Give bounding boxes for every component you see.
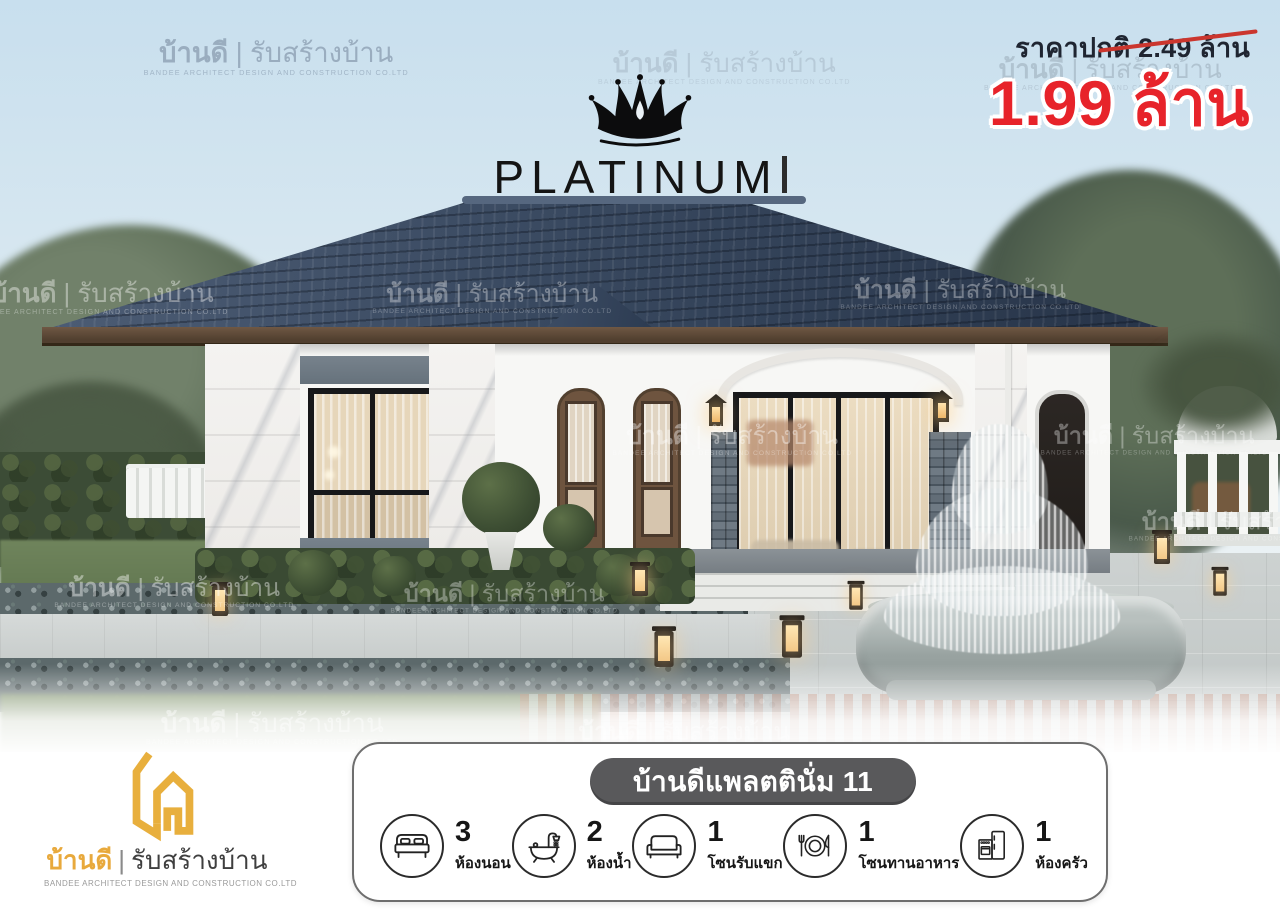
feature-kitchen: 1 ห้องครัว <box>960 814 1088 878</box>
poster: บ้านดี|รับสร้างบ้านBANDEE ARCHITECT DESI… <box>0 0 1280 923</box>
interior-artwork <box>747 420 813 466</box>
marble-pilaster <box>205 344 300 573</box>
feature-count: 1 <box>707 818 782 847</box>
promo-price: 1.99 ล้าน <box>989 73 1250 136</box>
brand-watermark: บ้านดี|รับสร้างบ้านBANDEE ARCHITECT DESI… <box>144 39 409 77</box>
bedroom-window <box>308 388 437 550</box>
garden-lamp <box>212 586 228 616</box>
feature-count: 3 <box>455 818 511 847</box>
series-badge-label: PLATINUM <box>493 150 778 204</box>
marble-pilaster <box>429 344 495 573</box>
bathtub-icon <box>512 814 576 878</box>
wall-lantern <box>931 390 953 432</box>
feature-label: ห้องนอน <box>455 851 511 875</box>
feature-label: ห้องน้ำ <box>587 851 632 875</box>
brand-logo-block: บ้านดี|รับสร้างบ้าน BANDEE ARCHITECT DES… <box>44 748 270 888</box>
brand-wordmark: บ้านดี|รับสร้างบ้าน <box>44 847 270 873</box>
dining-icon <box>783 814 847 878</box>
model-title-pill: บ้านดีแพลตตินั่ม 11 <box>590 758 916 805</box>
wall-lantern <box>705 394 727 436</box>
gazebo-balustrade <box>1174 512 1280 527</box>
garden-lamp <box>1213 570 1227 596</box>
crown-icon <box>577 74 703 148</box>
garden-lamp <box>782 620 802 658</box>
brand-company-name: BANDEE ARCHITECT DESIGN AND CONSTRUCTION… <box>44 879 270 888</box>
topiary-ball <box>462 462 540 536</box>
garden-lamp <box>1154 534 1170 564</box>
badge-bar <box>782 156 787 193</box>
window-light-reflection <box>324 470 334 480</box>
feature-label: ห้องครัว <box>1035 851 1088 875</box>
window-light-reflection <box>328 446 340 458</box>
feature-label: โซนรับแขก <box>707 851 782 875</box>
feature-bedrooms: 3 ห้องนอน <box>380 814 511 878</box>
feature-count: 2 <box>587 818 632 847</box>
sofa-icon <box>632 814 696 878</box>
window-transom-panel <box>300 356 433 384</box>
shrub <box>288 550 338 596</box>
house-logo-icon <box>109 748 205 842</box>
feature-living-zone: 1 โซนรับแขก <box>632 814 782 878</box>
feature-dining-zone: 1 โซนทานอาหาร <box>783 814 959 878</box>
bed-icon <box>380 814 444 878</box>
garden-lamp <box>632 566 648 596</box>
feature-label: โซนทานอาหาร <box>858 851 959 875</box>
regular-price: ราคาปกติ 2.49 ล้าน <box>1015 26 1250 69</box>
garden-fence <box>126 468 216 518</box>
shrub <box>372 556 416 596</box>
feature-count: 1 <box>858 818 959 847</box>
feature-list: 3 ห้องนอน <box>380 814 1088 878</box>
topiary-ball <box>543 504 595 552</box>
price-block: ราคาปกติ 2.49 ล้าน 1.99 ล้าน <box>989 26 1250 136</box>
feature-count: 1 <box>1035 818 1088 847</box>
kitchen-icon <box>960 814 1024 878</box>
feature-bathrooms: 2 ห้องน้ำ <box>512 814 632 878</box>
model-info-card: บ้านดีแพลตตินั่ม 11 3 ห้องนอน <box>352 742 1108 902</box>
garden-lamp <box>654 631 673 667</box>
garden-lamp <box>849 584 863 610</box>
